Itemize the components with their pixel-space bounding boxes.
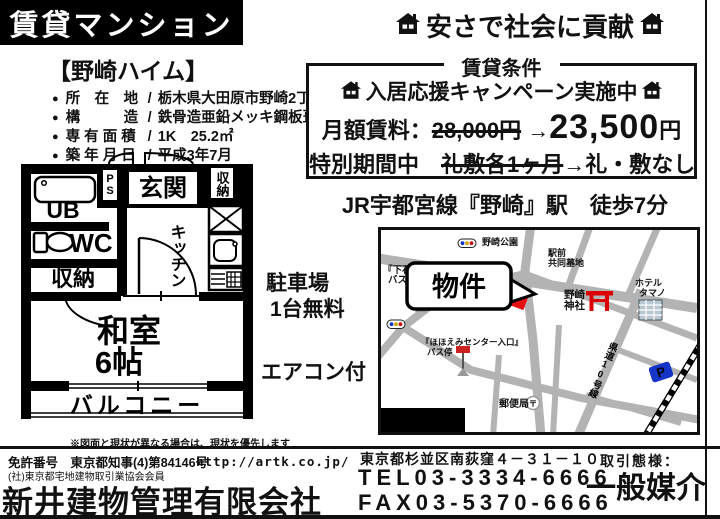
- bath-label: UB: [46, 197, 79, 223]
- bullet-icon: ●: [52, 93, 59, 105]
- conditions-box: 賃貸条件 入居応援キャンペーン実施中 月額賃料：28,000円 →23,500円…: [306, 63, 697, 179]
- park-label: 野崎公園: [482, 236, 518, 247]
- rent-line: 月額賃料：28,000円 →23,500円: [309, 108, 694, 150]
- svg-text:神社: 神社: [564, 299, 585, 312]
- station-access: JR宇都宮線『野崎』駅 徒歩7分: [320, 188, 690, 220]
- campaign-line: 入居応援キャンペーン実施中: [309, 78, 694, 108]
- dealing-type: 一般媒介: [586, 463, 706, 507]
- slogan-text: 安さで社会に貢献: [426, 7, 634, 44]
- traffic-light-icon: [458, 239, 476, 248]
- svg-text:物件地図: 物件地図: [395, 412, 451, 428]
- aircon-note: エアコン付: [261, 356, 366, 386]
- rental-flyer: 賃貸マンション 安さで社会に貢献 【野崎ハイム】 ●所 在 地/栃木県大田原市野…: [0, 0, 720, 519]
- torii-icon: [586, 291, 613, 311]
- page-edge-bottom: [0, 515, 720, 519]
- post-office-label: 郵便局: [499, 397, 529, 410]
- entrance-door-arcs: [109, 152, 193, 164]
- property-name: 【野崎ハイム】: [48, 52, 208, 86]
- page-edge-right: [705, 0, 707, 519]
- sink-icon: [209, 234, 243, 266]
- company-name: 新井建物管理有限会社: [2, 477, 322, 519]
- svg-text:共同墓地: 共同墓地: [548, 257, 584, 268]
- detail-value: 1K 25.2㎡: [158, 129, 234, 145]
- kitchen-counter-line: [123, 291, 199, 301]
- svg-text:タマノ: タマノ: [639, 287, 666, 298]
- closet-top-label: 収納: [215, 171, 230, 198]
- traffic-light-icon: [387, 320, 405, 329]
- arrow-glyph: →: [527, 118, 549, 143]
- bullet-icon: ●: [52, 112, 59, 124]
- area-map: 〒 P 野崎公園 駅前 共同墓地 『下石上』 バス停 野崎 神社 ホテル タマノ…: [378, 227, 700, 435]
- callout-label: 物件: [432, 272, 486, 302]
- conditions-title: 賃貸条件: [444, 52, 560, 81]
- slogan: 安さで社会に貢献: [352, 7, 708, 44]
- road-name-label: 県道10号線: [585, 339, 620, 400]
- cemetery-label: 駅前: [548, 247, 566, 258]
- hotel-icon: [639, 300, 662, 320]
- toilet-icon: [34, 233, 73, 252]
- parking-note: 駐車場 1台無料: [266, 271, 345, 323]
- arrow-glyph: →: [563, 152, 585, 177]
- rent-yen: 円: [659, 118, 681, 143]
- toilet-label: WC: [69, 228, 113, 258]
- special-old: 礼敷各1ヶ月: [441, 152, 563, 177]
- house-icon: [396, 10, 420, 41]
- bullet-icon: ●: [52, 131, 59, 143]
- rent-new-price: 23,500: [549, 108, 659, 146]
- closet-label: 収納: [51, 266, 95, 291]
- entrance-label: 玄関: [139, 174, 187, 202]
- website-url: http://artk.co.jp/: [196, 454, 349, 469]
- kitchen-label: キッチン: [168, 224, 186, 288]
- house-icon: [640, 10, 664, 41]
- stove-icon: [209, 268, 243, 290]
- room-name-label: 和室: [97, 313, 161, 349]
- map-legend: 物件地図: [381, 408, 465, 432]
- rent-old-price: 28,000円: [432, 118, 521, 143]
- house-icon: [642, 78, 662, 108]
- balcony-label: バルコニー: [70, 392, 205, 418]
- ps-label: PS: [104, 173, 116, 197]
- svg-text:バス停: バス停: [427, 347, 453, 357]
- page-title-banner: 賃貸マンション: [0, 0, 243, 45]
- fax-number: FAX03-5370-6666: [358, 490, 613, 516]
- banner-label: 賃貸マンション: [9, 2, 233, 44]
- phone-number: TEL03-3334-6666: [358, 465, 612, 491]
- special-line: 特別期間中礼敷各1ヶ月→礼・敷なし: [309, 150, 694, 180]
- floorplan-diagram: 玄関 収納 PS UB WC 収納 キッチン 和室 6帖 バルコニー: [19, 152, 255, 424]
- svg-text:〒: 〒: [529, 400, 537, 409]
- bus-stop-label: 『ほほえみセンター入口』: [421, 337, 523, 347]
- special-new: 礼・敷なし: [585, 152, 695, 177]
- refrigerator-space-icon: [209, 206, 243, 232]
- room-size-label: 6帖: [95, 345, 143, 380]
- rent-label: 月額賃料：: [322, 118, 432, 143]
- special-label: 特別期間中: [309, 152, 419, 177]
- campaign-text: 入居応援キャンペーン実施中: [366, 78, 638, 108]
- hotel-label: ホテル: [635, 278, 662, 288]
- house-icon: [341, 78, 361, 108]
